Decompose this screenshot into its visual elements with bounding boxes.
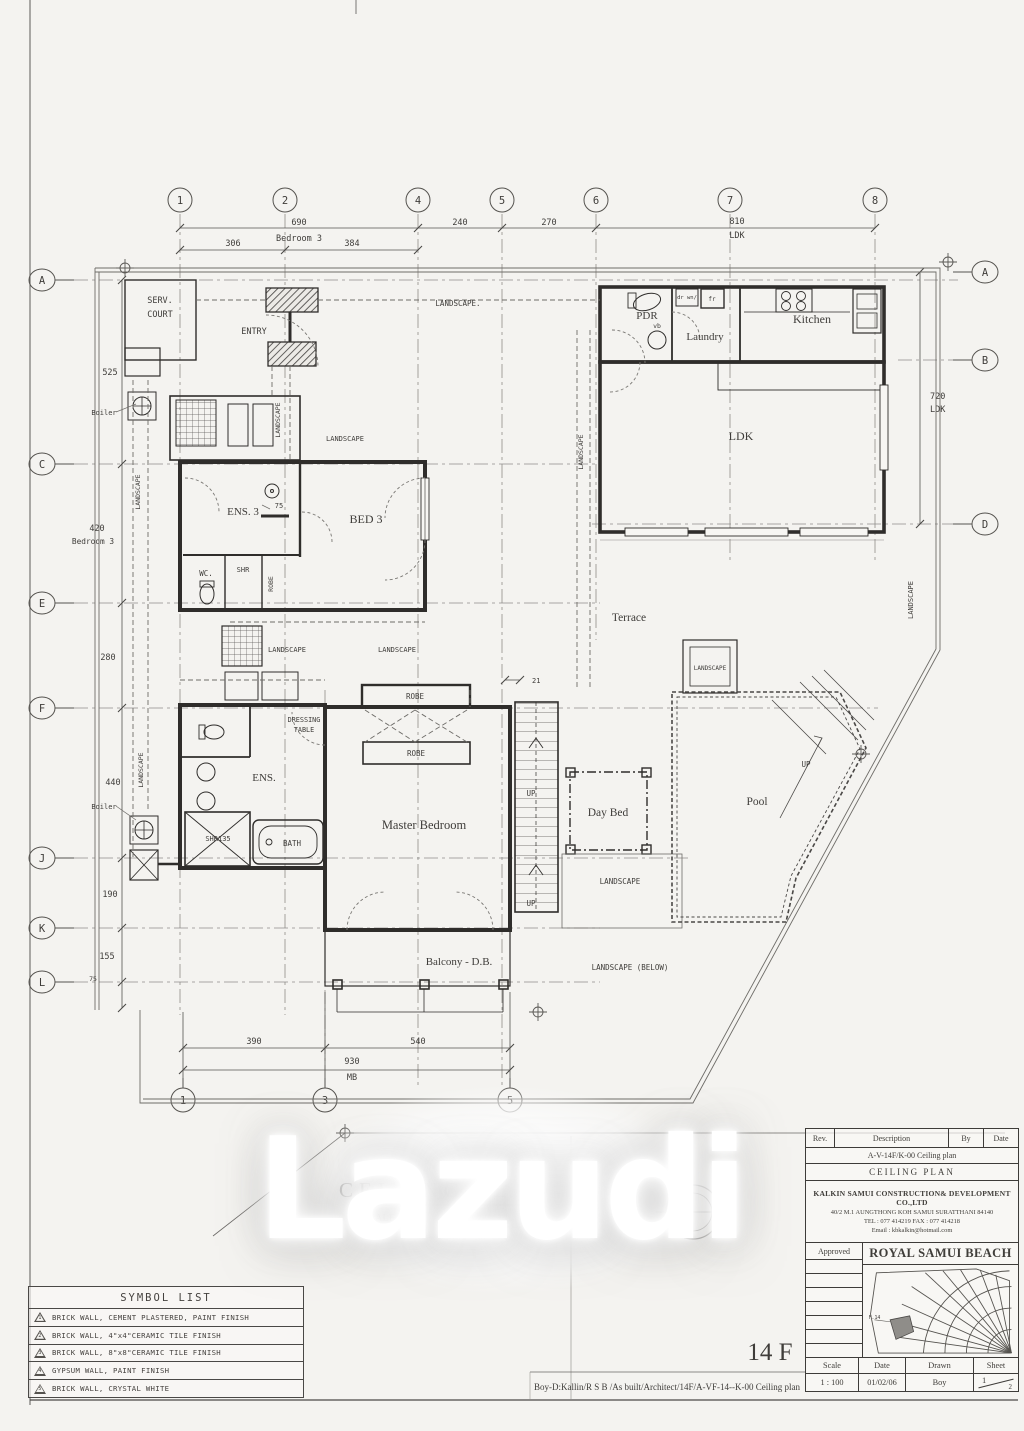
dim-bedroom3-left: Bedroom 3 — [72, 537, 115, 546]
grid-8: 8 — [872, 195, 878, 207]
dim-306: 306 — [225, 239, 240, 249]
company-phones: TEL : 077 414219 FAX : 077 414218 — [864, 1218, 960, 1225]
label-robe-1: ROBE — [406, 692, 425, 701]
label-shr135: SHR135 — [205, 835, 230, 843]
company-name: KALKIN SAMUI CONSTRUCTION& DEVELOPMENT C… — [806, 1189, 1018, 1207]
triangle-4-icon: 4 — [34, 1366, 46, 1376]
dim-21: 21 — [532, 677, 540, 685]
grid-d-right: D — [982, 519, 988, 531]
plot-label: F.14 — [868, 1315, 880, 1321]
dim-190: 190 — [102, 890, 117, 900]
label-landscape-top: LANDSCAPE. — [435, 299, 480, 308]
label-balcony: Balcony - D.B. — [426, 956, 493, 968]
symbol-label: BRICK WALL, 8"x8"CERAMIC TILE FINISH — [52, 1348, 221, 1357]
grid-5: 5 — [499, 195, 505, 207]
dim-270: 270 — [541, 218, 556, 228]
symbol-label: BRICK WALL, 4"x4"CERAMIC TILE FINISH — [52, 1331, 221, 1340]
triangle-3-icon: 3 — [34, 1348, 46, 1358]
label-landscape-left1: LANDSCAPE — [134, 474, 142, 509]
label-landscape-entry: LANDSCAPE — [274, 402, 282, 437]
dim-720: 720 — [930, 392, 945, 402]
document-title: CEILING PLAN — [806, 1164, 1018, 1181]
site-boundary — [95, 253, 957, 1142]
rev-header: Rev. — [806, 1129, 835, 1147]
label-boiler-2: Boiler — [91, 803, 116, 811]
label-landscape-bed3: LANDSCAPE — [326, 435, 364, 443]
label-bath: BATH — [283, 839, 302, 848]
label-landscape-daybed: LANDSCAPE — [600, 877, 641, 886]
label-landscape-ldk: LANDSCAPE — [577, 434, 585, 469]
label-up-2: UP — [526, 899, 536, 908]
dim-240: 240 — [452, 218, 467, 228]
dim-mb: MB — [347, 1073, 357, 1083]
grid-e: E — [39, 598, 45, 610]
grid-4: 4 — [415, 195, 421, 207]
symbol-list: SYMBOL LIST 1 BRICK WALL, CEMENT PLASTER… — [28, 1286, 304, 1398]
company-block: KALKIN SAMUI CONSTRUCTION& DEVELOPMENT C… — [806, 1181, 1018, 1243]
floor-code: 14 F — [747, 1339, 792, 1366]
grid-1: 1 — [177, 195, 183, 207]
dim-540: 540 — [410, 1037, 425, 1047]
title-area: CEILING PLAN SCALE 1:100 14 F Boy-D:Kall… — [339, 1178, 801, 1392]
dim-930: 930 — [344, 1057, 359, 1067]
triangle-5-icon: 5 — [34, 1384, 46, 1394]
label-serv: SERV. — [147, 296, 173, 306]
grid-3-bottom: 3 — [322, 1095, 328, 1107]
sheet-number: 1 2 — [974, 1374, 1018, 1391]
north-symbol — [656, 1185, 730, 1239]
label-robe-2: ROBE — [407, 749, 426, 758]
site-plan-thumbnail: F.14 — [863, 1265, 1018, 1357]
dim-75-left: 75 — [89, 975, 97, 983]
label-ldk: LDK — [729, 429, 754, 443]
drawn-heading: Drawn — [906, 1358, 973, 1374]
site-plan-svg: F.14 — [866, 1265, 1016, 1357]
label-up-pool: UP — [801, 760, 811, 769]
symbol-row: 3 BRICK WALL, 8"x8"CERAMIC TILE FINISH — [29, 1345, 303, 1363]
label-wc: WC. — [199, 569, 213, 578]
label-pdr: PDR — [636, 310, 658, 322]
dim-810: 810 — [729, 217, 744, 227]
date-cell: 01/02/06 — [859, 1374, 905, 1391]
label-dressing: DRESSING — [288, 716, 321, 724]
company-address: 40/2 M.1 AUNGTHONG KOH SAMUI SURATTHANI … — [831, 1209, 993, 1216]
title-block-footer: Scale 1 : 100 Date 01/02/06 Drawn Boy Sh… — [806, 1358, 1018, 1391]
label-robe-vert: ROBE — [267, 576, 275, 592]
grid-b-right: B — [982, 355, 988, 367]
company-email: Email : kbkalkin@hotmail.com — [872, 1227, 953, 1234]
highlighted-plot — [890, 1316, 913, 1339]
label-fr: fr — [708, 296, 716, 303]
grid-2: 2 — [282, 195, 288, 207]
label-landscape-below: LANDSCAPE (BELOW) — [592, 963, 669, 972]
revision-header: Rev. Description By Date — [806, 1129, 1018, 1148]
drawing-title: CEILING PLAN — [339, 1178, 555, 1202]
by-header: By — [949, 1129, 984, 1147]
dim-420: 420 — [89, 524, 104, 534]
dim-525: 525 — [102, 368, 117, 378]
date-heading: Date — [859, 1358, 905, 1374]
symbol-label: BRICK WALL, CEMENT PLASTERED, PAINT FINI… — [52, 1313, 249, 1322]
label-daybed: Day Bed — [588, 807, 629, 819]
grid-5-bottom: 5 — [507, 1095, 513, 1107]
label-landscape-right: LANDSCAPE — [907, 581, 915, 619]
grid-c: C — [39, 459, 45, 471]
dimension-texts: 690 Bedroom 3 306 384 240 270 810 LDK 52… — [72, 217, 946, 1083]
grid-1-bottom: 1 — [180, 1095, 186, 1107]
drawn-cell: Boy — [906, 1374, 973, 1391]
dim-390: 390 — [246, 1037, 261, 1047]
label-ens3: ENS. 3 — [227, 506, 259, 518]
grid-a: A — [39, 275, 46, 287]
grid-lines — [74, 214, 958, 1088]
label-shr: SHR — [237, 566, 250, 574]
scale-heading: Scale — [806, 1358, 858, 1374]
label-boiler-1: Boiler — [91, 409, 116, 417]
label-ens: ENS. — [252, 772, 276, 784]
label-court: COURT — [147, 310, 173, 320]
symbol-row: 4 GYPSUM WALL, PAINT FINISH — [29, 1362, 303, 1380]
document-code: A-V-14F/K-00 Ceiling plan — [806, 1148, 1018, 1164]
grid-7: 7 — [727, 195, 733, 207]
scale-label: SCALE — [362, 1213, 395, 1224]
label-up-1: UP — [526, 789, 536, 798]
triangle-1-icon: 1 — [34, 1312, 46, 1322]
label-landscape-poolbox: LANDSCAPE — [694, 665, 727, 672]
label-landscape-mid2: LANDSCAPE — [378, 646, 416, 654]
grid-j: J — [39, 853, 45, 865]
scale-cell: 1 : 100 — [806, 1374, 858, 1391]
symbol-row: 1 BRICK WALL, CEMENT PLASTERED, PAINT FI… — [29, 1309, 303, 1327]
approved-label: Approved — [806, 1243, 862, 1260]
symbol-label: GYPSUM WALL, PAINT FINISH — [52, 1366, 169, 1375]
dim-440: 440 — [105, 778, 120, 788]
dim-280: 280 — [100, 653, 115, 663]
scale-value: 1:100 — [466, 1213, 490, 1224]
sheet-heading: Sheet — [974, 1358, 1018, 1374]
label-master-bedroom: Master Bedroom — [382, 818, 467, 832]
label-landscape-mid1: LANDSCAPE — [268, 646, 306, 654]
dim-155: 155 — [99, 952, 114, 962]
label-table: TABLE — [294, 726, 314, 734]
dim-690: 690 — [291, 218, 306, 228]
label-drwn: dr wn/ — [677, 295, 697, 301]
label-entry: ENTRY — [241, 327, 267, 337]
symbol-label: BRICK WALL, CRYSTAL WHITE — [52, 1384, 169, 1393]
dim-ldk-right: LDK — [930, 405, 946, 415]
grid-l: L — [39, 977, 45, 989]
grid-a-right: A — [982, 267, 989, 279]
description-header: Description — [835, 1129, 949, 1147]
dim-bedroom3-top: Bedroom 3 — [276, 234, 322, 244]
title-block: Rev. Description By Date A-V-14F/K-00 Ce… — [805, 1128, 1019, 1392]
label-vb: vb — [653, 322, 661, 330]
footer-path: Boy-D:Kallin/R S B /As built/Architect/1… — [534, 1382, 800, 1392]
symbol-list-title: SYMBOL LIST — [29, 1287, 303, 1309]
dim-384: 384 — [344, 239, 359, 249]
label-laundry: Laundry — [686, 331, 724, 343]
label-terrace: Terrace — [612, 612, 646, 624]
approved-column: Approved — [806, 1243, 863, 1357]
symbol-row: 2 BRICK WALL, 4"x4"CERAMIC TILE FINISH — [29, 1327, 303, 1345]
label-kitchen: Kitchen — [793, 312, 831, 326]
grid-f: F — [39, 703, 45, 715]
label-pool: Pool — [746, 796, 767, 808]
grid-6: 6 — [593, 195, 599, 207]
label-landscape-left2: LANDSCAPE — [137, 752, 145, 787]
triangle-2-icon: 2 — [34, 1330, 46, 1340]
dim-ldk-top: LDK — [729, 231, 745, 241]
label-bed3: BED 3 — [350, 512, 383, 526]
walls — [125, 280, 888, 1012]
symbol-row: 5 BRICK WALL, CRYSTAL WHITE — [29, 1380, 303, 1397]
dim-75-ens3: 75 — [275, 502, 283, 510]
project-name: ROYAL SAMUI BEACH — [863, 1243, 1018, 1265]
date-header: Date — [984, 1129, 1018, 1147]
grid-k: K — [39, 923, 46, 935]
